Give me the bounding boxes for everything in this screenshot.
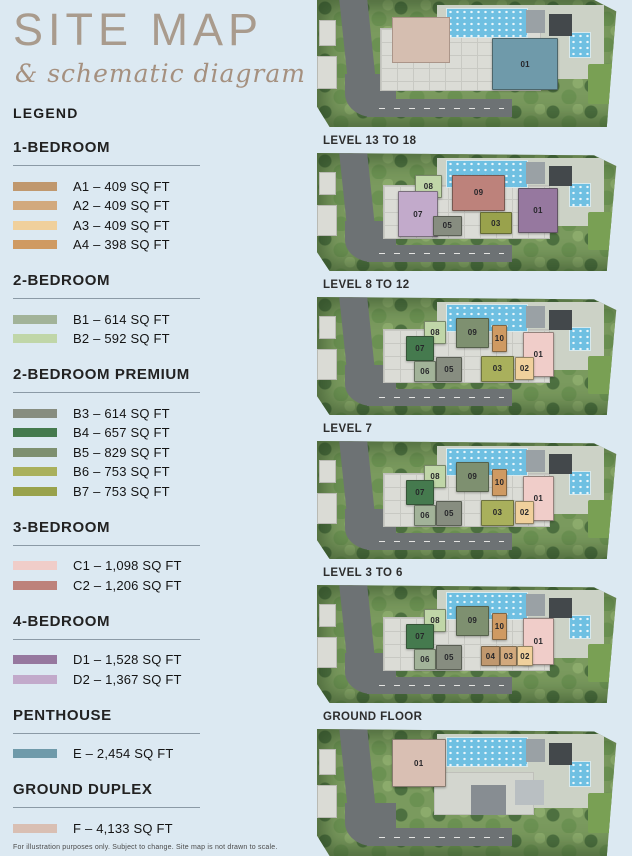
legend-item-B7: B7 – 753 SQ FT xyxy=(13,481,313,501)
map-label-level-8-12: LEVEL 8 TO 12 xyxy=(323,279,632,292)
page-subtitle: & schematic diagram xyxy=(15,59,313,88)
unit-09: 09 xyxy=(452,175,505,211)
legend-item-label: A4 – 398 SQ FT xyxy=(73,237,170,252)
legend-item-E: E – 2,454 SQ FT xyxy=(13,744,313,764)
legend-item-D2: D2 – 1,367 SQ FT xyxy=(13,669,313,689)
legend-swatch-E xyxy=(13,749,57,758)
legend-item-label: F – 4,133 SQ FT xyxy=(73,821,173,836)
section-heading: 3-BEDROOM xyxy=(13,519,313,536)
map-level-3-6: 01080910070605040302 xyxy=(317,585,632,703)
neighbor-building xyxy=(317,56,337,89)
section-rule xyxy=(13,165,200,166)
section-rule xyxy=(13,392,200,393)
section-heading: 4-BEDROOM xyxy=(13,613,313,630)
swimming-pool xyxy=(446,8,528,38)
legend-item-B2: B2 – 592 SQ FT xyxy=(13,329,313,349)
neighbor-building xyxy=(317,785,337,818)
legend-section-1-bedroom: 1-BEDROOMA1 – 409 SQ FTA2 – 409 SQ FTA3 … xyxy=(13,139,313,254)
pavilion xyxy=(549,166,573,186)
feature-roof xyxy=(392,17,450,64)
unit-10: 10 xyxy=(492,325,507,353)
pavilion xyxy=(549,454,573,474)
lawn xyxy=(588,793,616,834)
section-heading: 2-BEDROOM PREMIUM xyxy=(13,366,313,383)
unit-01: 01 xyxy=(518,188,558,233)
legend-swatch-A1 xyxy=(13,182,57,191)
unit-05: 05 xyxy=(433,216,462,236)
unit-03: 03 xyxy=(500,646,517,666)
pavilion xyxy=(549,14,573,36)
legend-heading: LEGEND xyxy=(13,105,313,121)
unit-09: 09 xyxy=(456,318,489,348)
page-title: SITE MAP xyxy=(13,6,313,53)
unit-07: 07 xyxy=(406,336,434,361)
unit-01: 01 xyxy=(392,739,446,787)
road xyxy=(367,677,512,694)
map-level-7: 010809100706050302 xyxy=(317,441,632,559)
lawn xyxy=(588,64,616,105)
map-level-8-12: 010809100706050302 xyxy=(317,297,632,415)
legend-item-B3: B3 – 614 SQ FT xyxy=(13,403,313,423)
map-level-13-18: 080901070503 xyxy=(317,153,632,271)
legend-swatch-B3 xyxy=(13,409,57,418)
pavilion xyxy=(549,598,573,618)
legend-item-B5: B5 – 829 SQ FT xyxy=(13,442,313,462)
unit-07: 07 xyxy=(406,480,434,505)
legend-item-label: C1 – 1,098 SQ FT xyxy=(73,558,182,573)
unit-03: 03 xyxy=(481,356,514,382)
road xyxy=(367,828,512,846)
legend-item-label: A2 – 409 SQ FT xyxy=(73,198,170,213)
lawn xyxy=(588,356,616,394)
lawn xyxy=(588,644,616,682)
pavilion xyxy=(549,743,573,765)
neighbor-building xyxy=(319,316,336,340)
legend-item-label: B5 – 829 SQ FT xyxy=(73,445,170,460)
amenity-block xyxy=(515,780,543,805)
plunge-pool xyxy=(569,32,591,59)
neighbor-building xyxy=(317,349,337,380)
legend-swatch-C2 xyxy=(13,581,57,590)
legend-item-label: B4 – 657 SQ FT xyxy=(73,425,170,440)
neighbor-building xyxy=(317,205,337,236)
legend-swatch-D1 xyxy=(13,655,57,664)
legend: 1-BEDROOMA1 – 409 SQ FTA2 – 409 SQ FTA3 … xyxy=(13,139,313,838)
unit-09: 09 xyxy=(456,462,489,492)
legend-item-label: C2 – 1,206 SQ FT xyxy=(73,578,182,593)
neighbor-building xyxy=(317,493,337,524)
legend-item-label: A1 – 409 SQ FT xyxy=(73,179,170,194)
legend-swatch-A3 xyxy=(13,221,57,230)
cabana xyxy=(526,450,545,471)
unit-06: 06 xyxy=(414,649,436,670)
unit-02: 02 xyxy=(517,646,533,666)
legend-item-F: F – 4,133 SQ FT xyxy=(13,818,313,838)
road xyxy=(367,389,512,406)
unit-05: 05 xyxy=(436,645,462,670)
legend-section-3-bedroom: 3-BEDROOMC1 – 1,098 SQ FTC2 – 1,206 SQ F… xyxy=(13,519,313,595)
neighbor-building xyxy=(319,460,336,484)
road xyxy=(367,245,512,262)
legend-swatch-B7 xyxy=(13,487,57,496)
plunge-pool xyxy=(569,761,591,788)
map-site: 01 xyxy=(317,0,632,127)
legend-swatch-C1 xyxy=(13,561,57,570)
unit-05: 05 xyxy=(436,357,462,382)
map-label-level-3-6: LEVEL 3 TO 6 xyxy=(323,567,632,580)
legend-item-A1: A1 – 409 SQ FT xyxy=(13,176,313,196)
legend-item-label: B3 – 614 SQ FT xyxy=(73,406,170,421)
unit-02: 02 xyxy=(515,501,534,523)
legend-swatch-A2 xyxy=(13,201,57,210)
legend-section-4-bedroom: 4-BEDROOMD1 – 1,528 SQ FTD2 – 1,367 SQ F… xyxy=(13,613,313,689)
legend-item-B4: B4 – 657 SQ FT xyxy=(13,423,313,443)
legend-item-C2: C2 – 1,206 SQ FT xyxy=(13,575,313,595)
legend-swatch-B1 xyxy=(13,315,57,324)
legend-swatch-B4 xyxy=(13,428,57,437)
cabana xyxy=(526,306,545,327)
road xyxy=(367,99,512,117)
neighbor-building xyxy=(319,604,336,628)
legend-item-label: B2 – 592 SQ FT xyxy=(73,331,170,346)
legend-item-B6: B6 – 753 SQ FT xyxy=(13,462,313,482)
road xyxy=(367,533,512,550)
legend-item-label: B1 – 614 SQ FT xyxy=(73,312,170,327)
lawn xyxy=(588,212,616,250)
legend-item-D1: D1 – 1,528 SQ FT xyxy=(13,650,313,670)
cabana xyxy=(526,162,545,183)
unit-02: 02 xyxy=(515,357,534,379)
neighbor-building xyxy=(317,637,337,668)
section-heading: GROUND DUPLEX xyxy=(13,781,313,798)
legend-section-2-bedroom-premium: 2-BEDROOM PREMIUMB3 – 614 SQ FTB4 – 657 … xyxy=(13,366,313,501)
legend-item-A3: A3 – 409 SQ FT xyxy=(13,215,313,235)
plunge-pool xyxy=(569,471,591,496)
cabana xyxy=(526,10,545,33)
legend-section-penthouse: PENTHOUSEE – 2,454 SQ FT xyxy=(13,707,313,764)
section-heading: PENTHOUSE xyxy=(13,707,313,724)
section-rule xyxy=(13,639,200,640)
legend-item-label: D1 – 1,528 SQ FT xyxy=(73,652,182,667)
section-rule xyxy=(13,298,200,299)
clubhouse-block xyxy=(471,785,506,815)
legend-section-ground-duplex: GROUND DUPLEXF – 4,133 SQ FT xyxy=(13,781,313,838)
section-rule xyxy=(13,733,200,734)
section-heading: 2-BEDROOM xyxy=(13,272,313,289)
legend-column: SITE MAP & schematic diagram LEGEND 1-BE… xyxy=(13,6,313,838)
section-rule xyxy=(13,807,200,808)
maps-column: 01LEVEL 13 TO 18080901070503LEVEL 8 TO 1… xyxy=(317,0,632,856)
section-rule xyxy=(13,545,200,546)
disclaimer-footnote: For illustration purposes only. Subject … xyxy=(13,844,278,851)
unit-10: 10 xyxy=(492,613,507,641)
unit-07: 07 xyxy=(398,191,438,238)
legend-item-A4: A4 – 398 SQ FT xyxy=(13,235,313,255)
unit-10: 10 xyxy=(492,469,507,497)
lawn xyxy=(588,500,616,538)
legend-swatch-A4 xyxy=(13,240,57,249)
plunge-pool xyxy=(569,615,591,640)
swimming-pool xyxy=(446,737,528,767)
neighbor-building xyxy=(319,20,336,45)
neighbor-building xyxy=(319,172,336,196)
unit-05: 05 xyxy=(436,501,462,526)
plunge-pool xyxy=(569,183,591,208)
cabana xyxy=(526,594,545,615)
legend-section-2-bedroom: 2-BEDROOMB1 – 614 SQ FTB2 – 592 SQ FT xyxy=(13,272,313,348)
unit-09: 09 xyxy=(456,606,489,636)
unit-07: 07 xyxy=(406,624,434,649)
legend-item-B1: B1 – 614 SQ FT xyxy=(13,309,313,329)
unit-03: 03 xyxy=(480,212,512,234)
map-label-level-7: LEVEL 7 xyxy=(323,423,632,436)
legend-item-label: B6 – 753 SQ FT xyxy=(73,464,170,479)
unit-03: 03 xyxy=(481,500,514,526)
map-label-ground-floor: GROUND FLOOR xyxy=(323,711,632,724)
section-heading: 1-BEDROOM xyxy=(13,139,313,156)
unit-04: 04 xyxy=(481,646,500,666)
page: SITE MAP & schematic diagram LEGEND 1-BE… xyxy=(0,0,632,856)
legend-item-label: D2 – 1,367 SQ FT xyxy=(73,672,182,687)
unit-01: 01 xyxy=(492,38,558,90)
legend-item-A2: A2 – 409 SQ FT xyxy=(13,196,313,216)
legend-item-label: E – 2,454 SQ FT xyxy=(73,746,174,761)
legend-item-C1: C1 – 1,098 SQ FT xyxy=(13,556,313,576)
legend-item-label: A3 – 409 SQ FT xyxy=(73,218,170,233)
map-label-level-13-18: LEVEL 13 TO 18 xyxy=(323,135,632,148)
neighbor-building xyxy=(319,749,336,774)
legend-swatch-D2 xyxy=(13,675,57,684)
legend-swatch-B5 xyxy=(13,448,57,457)
unit-06: 06 xyxy=(414,505,436,526)
unit-06: 06 xyxy=(414,361,436,382)
cabana xyxy=(526,739,545,762)
legend-swatch-B2 xyxy=(13,334,57,343)
plunge-pool xyxy=(569,327,591,352)
pavilion xyxy=(549,310,573,330)
legend-swatch-B6 xyxy=(13,467,57,476)
legend-swatch-F xyxy=(13,824,57,833)
map-ground-floor: 01 xyxy=(317,729,632,856)
legend-item-label: B7 – 753 SQ FT xyxy=(73,484,170,499)
